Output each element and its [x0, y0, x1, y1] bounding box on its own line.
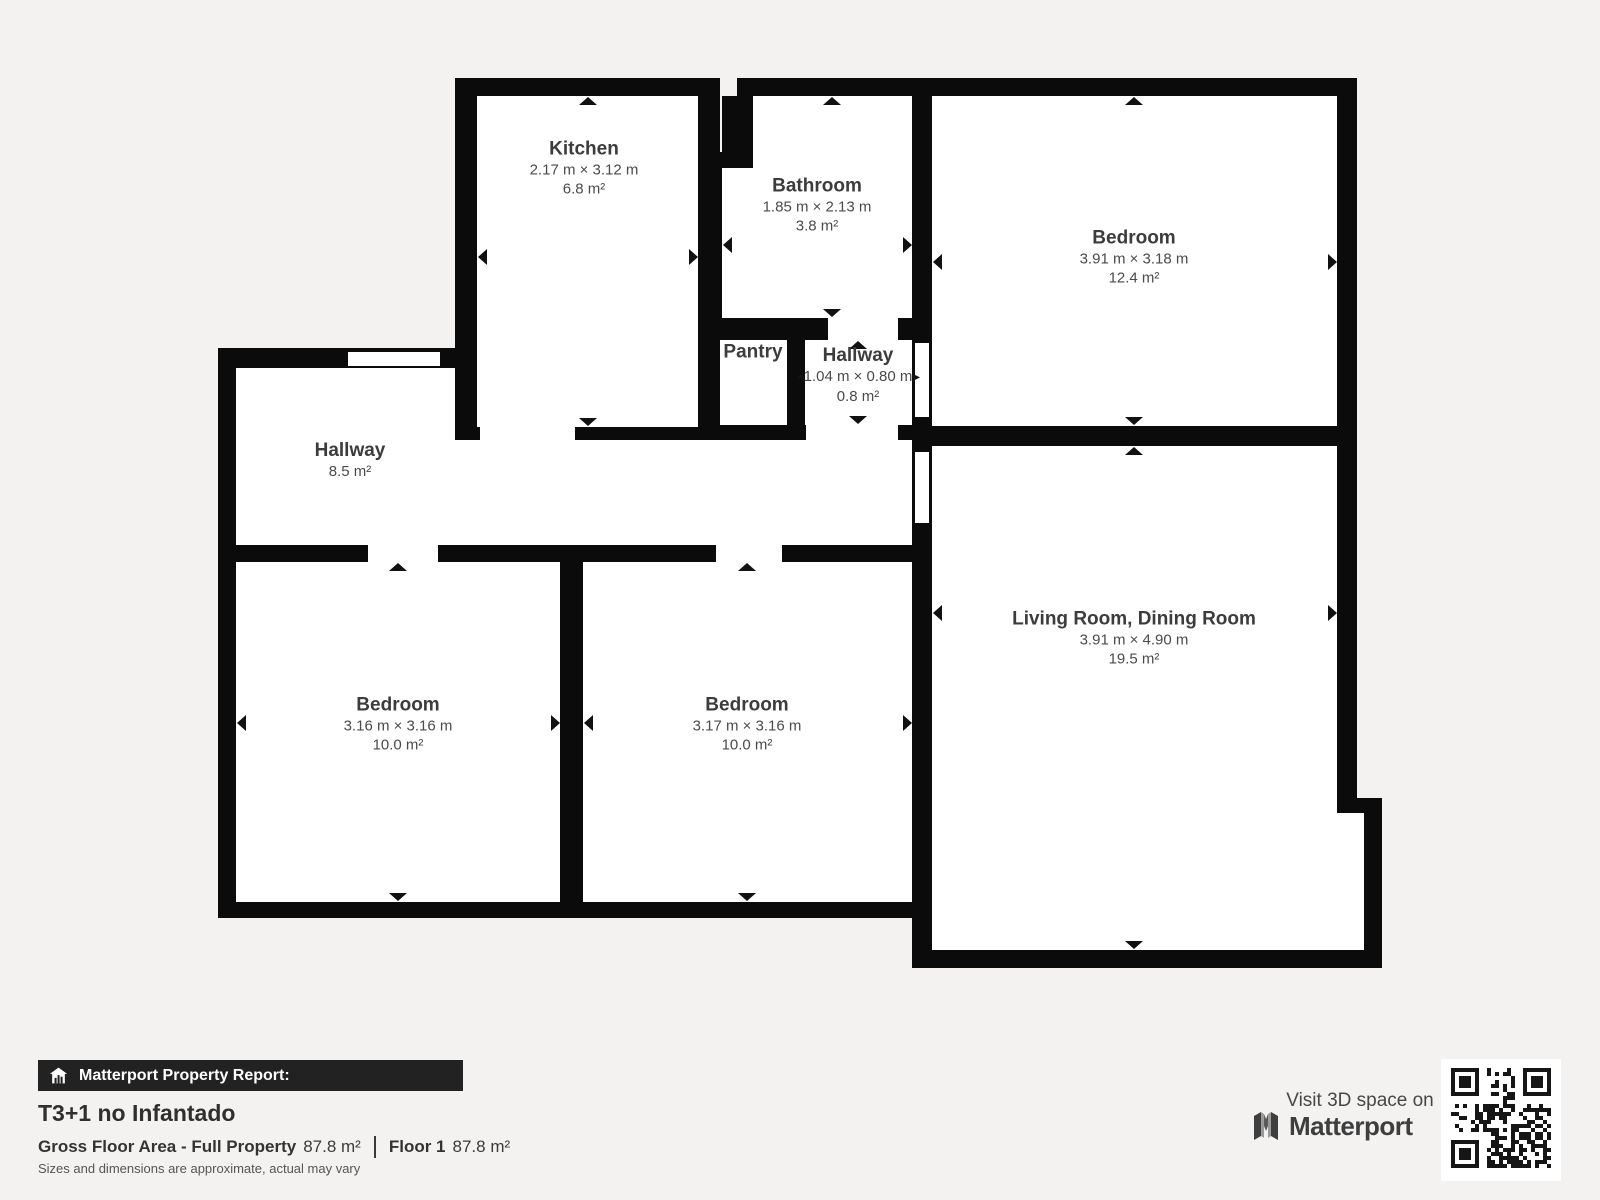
measure-arrow-up-icon: [389, 563, 407, 571]
room-label-living: Living Room, Dining Room 3.91 m × 4.90 m…: [1012, 608, 1256, 669]
floor-plan-page: Kitchen 2.17 m × 3.12 m 6.8 m² Bathroom …: [0, 0, 1600, 1200]
measure-arrow-right-icon: [551, 715, 560, 731]
room-label-bedroom-bottom-left: Bedroom 3.16 m × 3.16 m 10.0 m²: [344, 694, 453, 755]
measure-arrow-down-icon: [1125, 417, 1143, 425]
measure-arrow-left-icon: ◀: [796, 372, 804, 383]
room-label-hallway-small: Hallway ◀1.04 m × 0.80 m▶ 0.8 m²: [796, 344, 920, 406]
property-title: T3+1 no Infantado: [38, 1100, 235, 1127]
room-dims: ◀1.04 m × 0.80 m▶: [796, 367, 920, 387]
measure-arrow-right-icon: [1328, 254, 1337, 270]
room-area: 0.8 m²: [796, 387, 920, 406]
measure-arrow-up-icon: [823, 97, 841, 105]
room-name: Kitchen: [530, 138, 639, 161]
room-name: Hallway: [315, 439, 386, 462]
measure-arrow-up-icon: [1125, 447, 1143, 455]
report-bar: Matterport Property Report:: [38, 1060, 463, 1091]
room-label-bedroom-top-right: Bedroom 3.91 m × 3.18 m 12.4 m²: [1080, 227, 1189, 288]
divider: [374, 1136, 376, 1158]
room-area: 6.8 m²: [530, 180, 639, 199]
measure-arrow-right-icon: [689, 249, 698, 265]
wall-step-bathroom: [722, 96, 753, 168]
qr-code-pattern: [1451, 1068, 1551, 1173]
matterport-logo-icon: [1251, 1110, 1281, 1142]
room-name: Living Room, Dining Room: [1012, 608, 1256, 631]
gross-area-label: Gross Floor Area - Full Property: [38, 1137, 296, 1157]
room-label-pantry: Pantry: [723, 341, 782, 364]
room-interior-living: [932, 446, 1337, 950]
measure-arrow-left-icon: [933, 605, 942, 621]
room-name: Bathroom: [763, 175, 872, 198]
gross-area-value: 87.8 m²: [303, 1137, 361, 1157]
door-opening-bathroom: [828, 317, 898, 340]
visit-3d-text: Visit 3D space on: [1280, 1090, 1440, 1112]
matterport-brand: Matterport: [1251, 1110, 1413, 1142]
door-opening-hallway-small: [806, 424, 898, 440]
measure-arrow-left-icon: [723, 237, 732, 253]
floor-label: Floor 1: [389, 1137, 446, 1157]
room-dims: 3.91 m × 4.90 m: [1012, 631, 1256, 650]
measure-arrow-left-icon: [584, 715, 593, 731]
room-area: 10.0 m²: [693, 736, 802, 755]
qr-code: [1441, 1059, 1561, 1181]
room-name: Bedroom: [693, 694, 802, 717]
measure-arrow-left-icon: [933, 254, 942, 270]
report-bar-label: Matterport Property Report:: [79, 1067, 290, 1085]
door-opening-kitchen: [480, 426, 575, 440]
room-name: Bedroom: [1080, 227, 1189, 250]
room-dims: 3.16 m × 3.16 m: [344, 717, 453, 736]
measure-arrow-down-icon: [823, 309, 841, 317]
disclaimer-text: Sizes and dimensions are approximate, ac…: [38, 1161, 360, 1176]
measure-arrow-up-icon: [738, 563, 756, 571]
room-label-hallway: Hallway 8.5 m²: [315, 439, 386, 481]
room-dims: 2.17 m × 3.12 m: [530, 161, 639, 180]
measure-arrow-down-icon: [738, 893, 756, 901]
room-dims: 3.91 m × 3.18 m: [1080, 250, 1189, 269]
room-label-kitchen: Kitchen 2.17 m × 3.12 m 6.8 m²: [530, 138, 639, 199]
room-area: 12.4 m²: [1080, 269, 1189, 288]
room-dims: 3.17 m × 3.16 m: [693, 717, 802, 736]
measure-arrow-left-icon: [237, 715, 246, 731]
room-area: 10.0 m²: [344, 736, 453, 755]
room-name: Pantry: [723, 341, 782, 364]
window-opening-hallway: [348, 352, 440, 366]
measure-arrow-down-icon: [579, 418, 597, 426]
room-dims: 1.85 m × 2.13 m: [763, 198, 872, 217]
door-opening-bedroom-left: [368, 544, 438, 562]
floor-value: 87.8 m²: [453, 1137, 511, 1157]
measure-arrow-down-icon: [849, 416, 867, 424]
room-area: 8.5 m²: [315, 462, 386, 481]
room-label-bathroom: Bathroom 1.85 m × 2.13 m 3.8 m²: [763, 175, 872, 236]
room-name: Hallway: [796, 344, 920, 367]
house-icon: [49, 1066, 68, 1085]
measure-arrow-right-icon: [903, 237, 912, 253]
measure-arrow-right-icon: [1328, 605, 1337, 621]
measure-arrow-left-icon: [478, 249, 487, 265]
room-label-bedroom-bottom-middle: Bedroom 3.17 m × 3.16 m 10.0 m²: [693, 694, 802, 755]
door-opening-bedroom-middle: [716, 544, 782, 562]
room-area: 3.8 m²: [763, 217, 872, 236]
measure-arrow-up-icon: [1125, 97, 1143, 105]
measure-arrow-up-icon: [579, 97, 597, 105]
measure-arrow-right-icon: ▶: [912, 372, 920, 383]
door-slot-living-left: [915, 452, 929, 523]
matterport-wordmark: Matterport: [1289, 1111, 1413, 1142]
measure-arrow-down-icon: [389, 893, 407, 901]
floor-area-line: Gross Floor Area - Full Property 87.8 m²…: [38, 1136, 510, 1158]
measure-arrow-right-icon: [903, 715, 912, 731]
room-area: 19.5 m²: [1012, 650, 1256, 669]
room-name: Bedroom: [344, 694, 453, 717]
measure-arrow-down-icon: [1125, 941, 1143, 949]
room-interior-living-bump: [1337, 813, 1364, 950]
